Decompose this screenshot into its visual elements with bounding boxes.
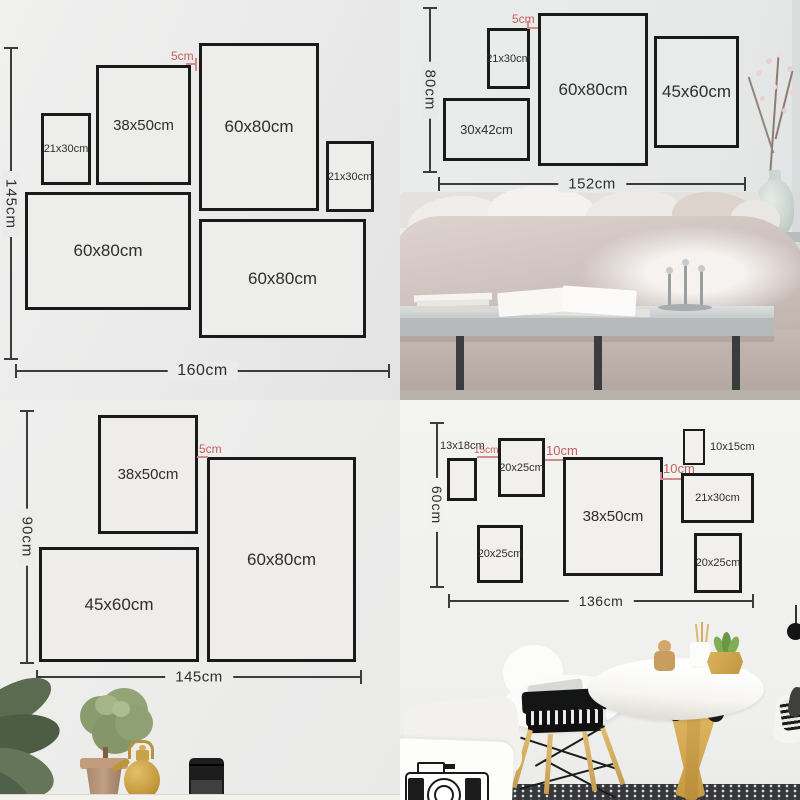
frame-30x42: 30x42cm: [443, 98, 530, 161]
gap-marker-tick: [527, 21, 529, 29]
gap-15cm-label: 15cm: [474, 445, 498, 456]
gap-10cm-label: 10cm: [546, 443, 578, 458]
layout-diagram-160x145: 145cm 21x30cm 38x50cm 60x80cm 21x30cm 60…: [0, 0, 400, 400]
dining-nook-layout-photo-136x60: 60cm 13x18cm 10x15cm 20x25cm 38x50cm 21x…: [400, 400, 800, 800]
gap-10cm-label: 10cm: [663, 461, 695, 476]
frame-60x80: 60x80cm: [207, 457, 356, 662]
frame-38x50: 38x50cm: [563, 457, 663, 576]
gap-marker-line: [661, 478, 681, 480]
width-dimension-arrow: 145cm: [36, 670, 362, 684]
width-dimension-arrow: 152cm: [438, 177, 746, 191]
frame-45x60: 45x60cm: [654, 36, 739, 148]
height-dimension-arrow: 90cm: [20, 410, 34, 664]
frame-45x60: 45x60cm: [39, 547, 199, 662]
frame-60x80: 60x80cm: [538, 13, 648, 166]
frame-13x18: [447, 458, 477, 501]
layout-diagram-145x90: 90cm 38x50cm 60x80cm 45x60cm 5cm 145cm: [0, 400, 400, 800]
height-dimension-label: 145cm: [3, 170, 20, 236]
gap-marker-line: [545, 459, 563, 461]
frame-60x80-landscape: 60x80cm: [25, 192, 191, 310]
frame-21x30: 21x30cm: [681, 473, 754, 523]
frame-21x30: 21x30cm: [487, 28, 530, 89]
frame-60x80-portrait: 60x80cm: [199, 43, 319, 211]
gallery-wall-size-guide-collage: 145cm 21x30cm 38x50cm 60x80cm 21x30cm 60…: [0, 0, 800, 800]
frame-21x30: 21x30cm: [326, 141, 374, 212]
frame-20x25: 20x25cm: [498, 438, 545, 497]
gap-marker-line: [477, 456, 498, 458]
carpet: [400, 390, 800, 400]
frame-60x80-landscape: 60x80cm: [199, 219, 366, 338]
width-dimension-label: 152cm: [558, 176, 626, 193]
frame-38x50: 38x50cm: [96, 65, 191, 185]
gap-5cm-label: 5cm: [171, 49, 194, 63]
bedroom-layout-photo-152x80: 80cm 21x30cm 60x80cm 45x60cm 30x42cm 5cm…: [400, 0, 800, 400]
frame-10x15: [683, 429, 705, 465]
frame-20x25: 20x25cm: [694, 533, 742, 593]
frame-20x25: 20x25cm: [477, 525, 523, 583]
gap-5cm-label: 5cm: [199, 442, 222, 456]
gap-marker-tick: [195, 58, 197, 71]
width-dimension-label: 145cm: [165, 669, 233, 686]
width-dimension-arrow: 160cm: [15, 364, 390, 378]
width-dimension-arrow: 136cm: [448, 594, 754, 608]
frame-38x50: 38x50cm: [98, 415, 198, 534]
height-dimension-arrow: 80cm: [423, 7, 437, 173]
gap-5cm-label: 5cm: [512, 12, 535, 26]
frame-21x30: 21x30cm: [41, 113, 91, 185]
gap-marker-line: [197, 456, 208, 458]
height-dimension-label: 80cm: [422, 62, 439, 119]
frame-10x15-label: 10x15cm: [710, 441, 755, 453]
width-dimension-label: 160cm: [167, 362, 238, 380]
height-dimension-label: 60cm: [429, 478, 445, 532]
height-dimension-arrow: 145cm: [4, 47, 18, 360]
height-dimension-label: 90cm: [19, 509, 36, 566]
width-dimension-label: 136cm: [569, 593, 634, 609]
table-surface: [0, 794, 400, 800]
